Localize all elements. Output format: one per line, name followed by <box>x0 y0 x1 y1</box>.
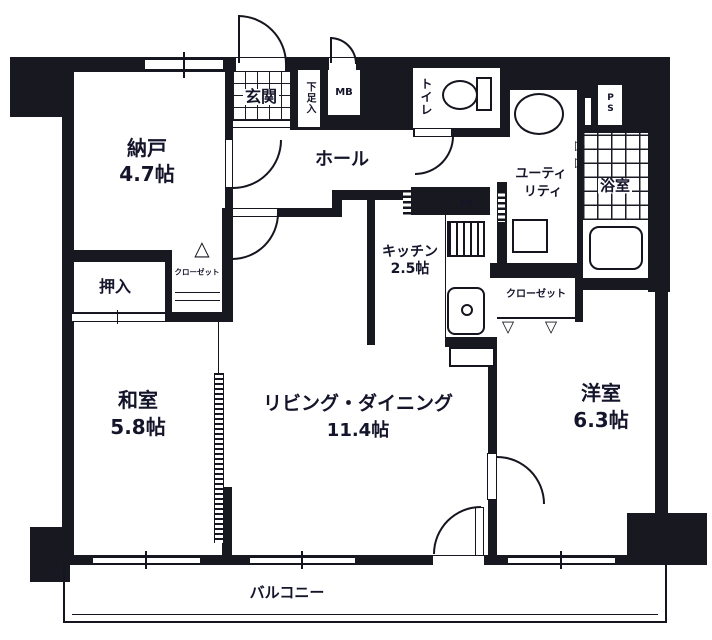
room-label-nando: 納戸 <box>127 138 167 158</box>
balcony-inner-line <box>72 565 658 615</box>
wall <box>62 57 74 565</box>
room-label-mb: MB <box>335 88 353 98</box>
room-label-utility-1: ユーティ <box>515 168 566 181</box>
room-label-genkan: 玄関 <box>243 89 279 105</box>
wall <box>575 272 583 322</box>
door-leaf <box>225 139 233 188</box>
kitchen-counter <box>449 347 495 367</box>
room-size-yoshitsu: 6.3帖 <box>573 410 628 430</box>
room-label-balcony: バルコニー <box>250 586 325 601</box>
door-arc <box>497 456 545 504</box>
wall <box>583 278 668 290</box>
room-label-closet-nando: クローゼット <box>175 268 220 276</box>
floorplan: △ ▽ ▽ ▷ ▷ 納戸 4.7帖 玄関 下足入 MB ホール トイレ PS ユ… <box>0 0 712 640</box>
washbasin-icon <box>514 93 564 135</box>
counter-edge <box>445 215 446 337</box>
door-arc <box>433 506 481 554</box>
closet-shelf-line <box>175 300 220 301</box>
toilet-tank-icon <box>476 77 492 111</box>
accordion-door <box>498 191 505 222</box>
window-tick <box>183 52 185 78</box>
wall <box>62 250 172 262</box>
door-arc <box>415 136 454 175</box>
partition-line <box>218 322 219 373</box>
door-arc <box>233 140 282 189</box>
room-label-bath: 浴室 <box>598 179 632 194</box>
room-label-utility-2: リティ <box>524 186 562 199</box>
stove-icon <box>447 221 485 257</box>
wall <box>445 337 497 347</box>
genkan-step <box>233 120 290 128</box>
wall <box>165 250 172 312</box>
room-label-washitsu: 和室 <box>118 390 158 410</box>
wall <box>367 195 375 345</box>
wall <box>10 57 70 117</box>
wall <box>488 500 497 557</box>
room-size-washitsu: 5.8帖 <box>110 417 165 437</box>
oshiire-sliding-door <box>72 313 165 322</box>
wall <box>648 57 670 292</box>
pipe-space-sliver <box>585 98 591 125</box>
room-label-living: リビング・ダイニング <box>263 395 453 414</box>
room-label-ps-kitchen: PS <box>460 201 473 210</box>
accordion-door <box>403 190 411 217</box>
slider-tick <box>117 310 118 324</box>
fold-door-mark: △ <box>194 238 209 258</box>
bath-door-mark: ▷ <box>575 157 585 170</box>
fold-door-mark: ▽ <box>502 319 514 335</box>
door-arc <box>232 213 279 260</box>
room-label-toilet: トイレ <box>420 78 432 117</box>
bath-door-mark: ▷ <box>575 140 585 153</box>
wall <box>225 72 233 140</box>
room-label-ps-top: PS <box>606 93 615 115</box>
door-leaf <box>487 453 497 500</box>
washer-icon <box>512 219 548 253</box>
room-label-yoshitsu: 洋室 <box>581 383 621 403</box>
wall <box>490 263 583 278</box>
wall <box>411 187 490 215</box>
room-size-nando: 4.7帖 <box>119 164 174 184</box>
door-arc <box>330 37 357 64</box>
room-label-kitchen: キッチン <box>382 245 438 259</box>
toilet-icon <box>442 80 478 110</box>
balcony-door-opening <box>433 556 484 565</box>
room-label-hall: ホール <box>315 151 369 169</box>
room-label-oshiire: 押入 <box>99 279 131 295</box>
fusuma-partition <box>214 373 224 543</box>
door-arc <box>238 15 287 64</box>
room-label-closet-bedroom: クローゼット <box>506 290 566 300</box>
room-size-kitchen: 2.5帖 <box>391 262 430 276</box>
closet-shelf-line <box>175 292 220 293</box>
room-size-living: 11.4帖 <box>327 422 389 440</box>
faucet-icon <box>461 304 473 316</box>
bathtub-icon <box>589 226 643 270</box>
fold-door-mark: ▽ <box>545 319 557 335</box>
room-label-getabako: 下足入 <box>304 82 314 115</box>
